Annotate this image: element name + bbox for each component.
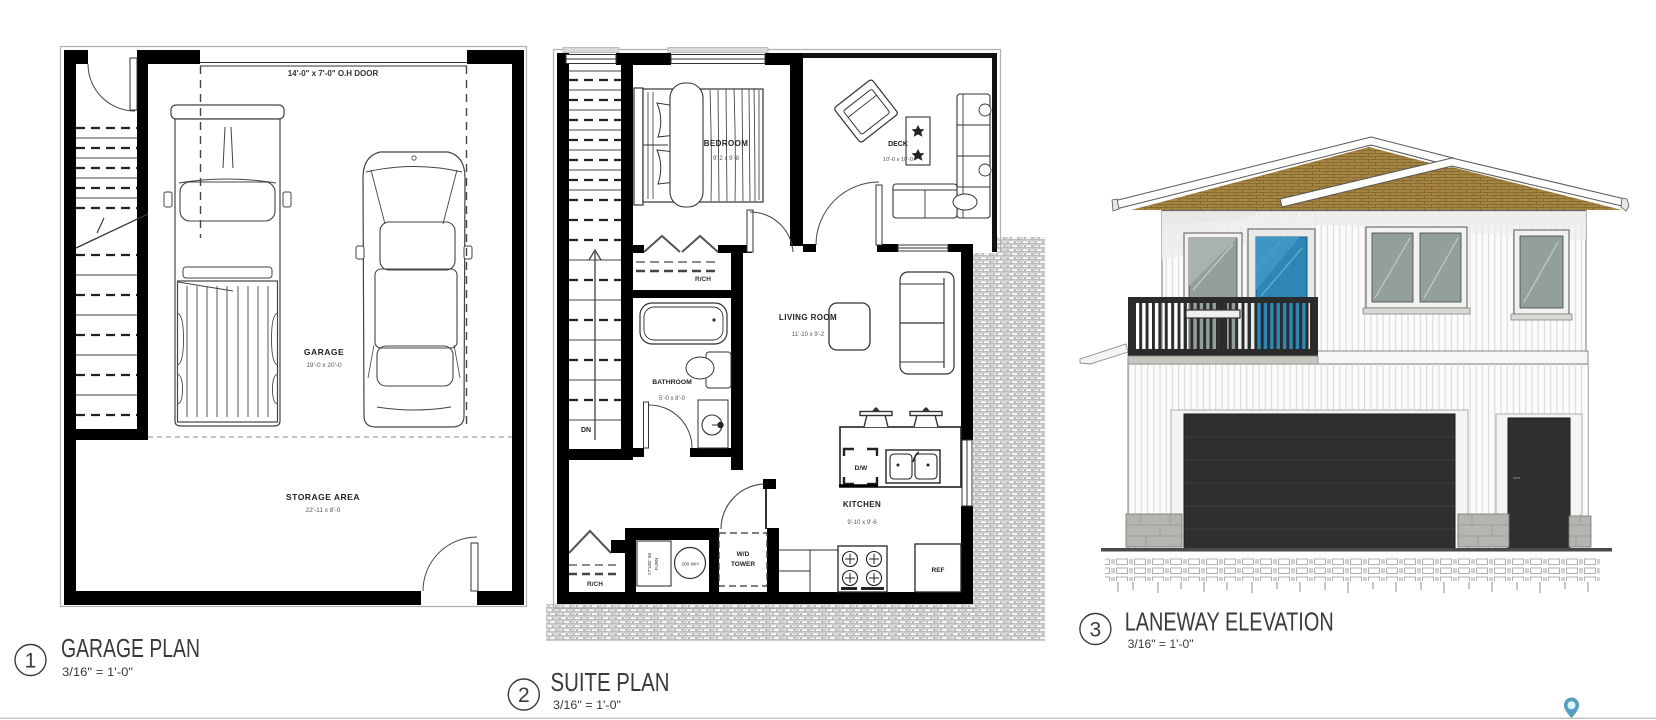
svg-text:1: 1 xyxy=(25,650,37,673)
svg-text:9'-2 x 9'-8: 9'-2 x 9'-8 xyxy=(713,156,740,162)
svg-text:D/W: D/W xyxy=(855,465,869,472)
svg-text:2: 2 xyxy=(518,684,530,707)
svg-text:LIVING ROOM: LIVING ROOM xyxy=(779,313,837,322)
svg-text:LANEWAY ELEVATION: LANEWAY ELEVATION xyxy=(1125,606,1334,636)
svg-text:R/CH: R/CH xyxy=(587,581,603,588)
svg-text:9'-10 x 9'-6: 9'-10 x 9'-6 xyxy=(847,520,877,526)
svg-text:14'-0" x 7'-0" O.H DOOR: 14'-0" x 7'-0" O.H DOOR xyxy=(288,69,379,78)
svg-text:BATHROOM: BATHROOM xyxy=(652,379,692,386)
svg-text:DECK: DECK xyxy=(888,141,908,148)
svg-text:R/CH: R/CH xyxy=(695,276,711,283)
svg-text:TOWER: TOWER xyxy=(731,561,755,568)
svg-text:3/16" = 1'-0": 3/16" = 1'-0" xyxy=(1128,639,1194,651)
svg-text:19'-0 x 20'-0: 19'-0 x 20'-0 xyxy=(306,362,342,369)
svg-text:27"x30" 60: 27"x30" 60 xyxy=(647,552,652,575)
svg-text:DN: DN xyxy=(581,427,591,434)
svg-text:W/D: W/D xyxy=(737,551,750,558)
svg-text:3: 3 xyxy=(1090,619,1102,642)
svg-text:SUITE PLAN: SUITE PLAN xyxy=(551,667,670,697)
svg-text:STORAGE AREA: STORAGE AREA xyxy=(286,492,360,502)
svg-text:GARAGE: GARAGE xyxy=(304,347,344,357)
svg-text:11'-10 x 9'-2: 11'-10 x 9'-2 xyxy=(792,332,825,338)
svg-text:KITCHEN: KITCHEN xyxy=(843,500,881,509)
svg-text:FURN: FURN xyxy=(654,558,659,571)
svg-text:200 WH: 200 WH xyxy=(681,562,699,568)
svg-text:3/16" = 1'-0": 3/16" = 1'-0" xyxy=(62,667,133,679)
svg-text:10'-0 x 10'-0: 10'-0 x 10'-0 xyxy=(883,157,913,163)
svg-text:BEDROOM: BEDROOM xyxy=(704,139,749,148)
svg-text:GARAGE PLAN: GARAGE PLAN xyxy=(61,633,200,663)
svg-text:5'-0 x 8'-0: 5'-0 x 8'-0 xyxy=(659,396,686,402)
svg-text:REF: REF xyxy=(932,567,945,574)
svg-text:3/16" = 1'-0": 3/16" = 1'-0" xyxy=(553,700,621,712)
svg-text:22'-11 x 8'-0: 22'-11 x 8'-0 xyxy=(306,507,341,514)
